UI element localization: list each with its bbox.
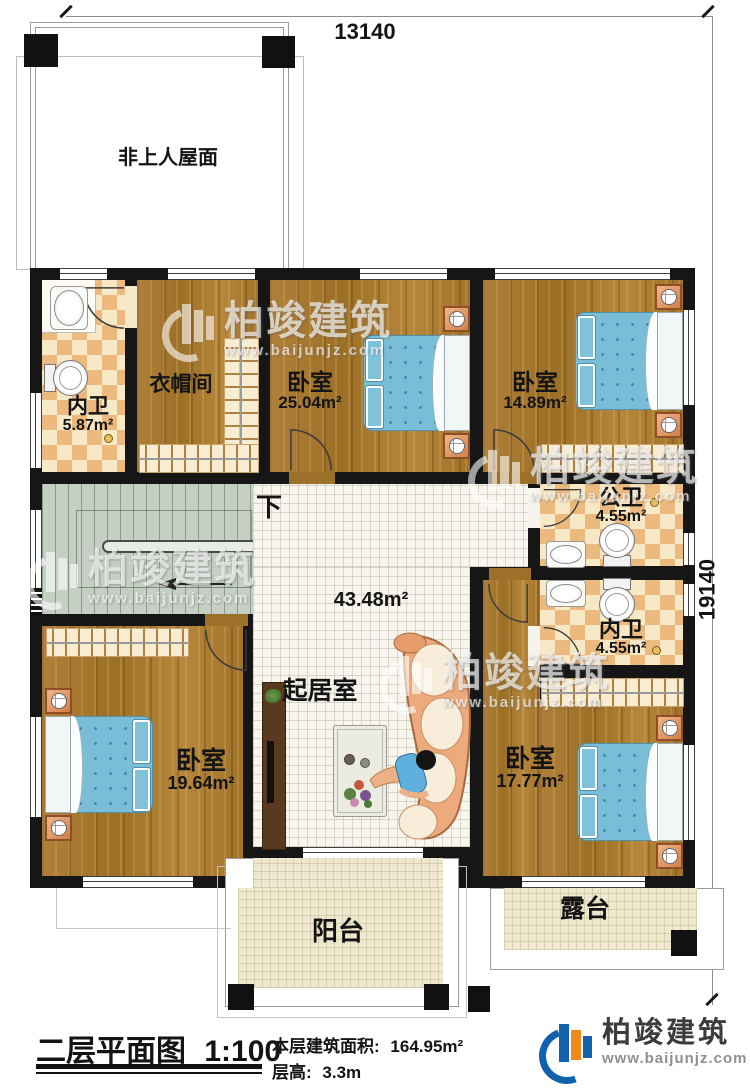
sliding-door-terrace [522, 876, 645, 888]
column [424, 984, 449, 1010]
door-gap [492, 472, 538, 484]
nightstand [656, 843, 683, 869]
room-area: 14.89m² [490, 394, 580, 412]
bedroom-right-wardrobe [541, 678, 684, 707]
roof-outline [30, 22, 289, 270]
room-label-bedroom-left: 卧室 19.64m² [156, 748, 246, 793]
door-arc-bedroom-top-right [492, 428, 536, 472]
dimension-height-label: 19140 [695, 545, 718, 635]
sink [546, 541, 586, 568]
room-label-balcony: 阳台 [308, 918, 368, 945]
room-name: 公卫 [588, 486, 654, 509]
room-label-living: 起居室 [276, 678, 364, 704]
window [683, 310, 695, 405]
floor-drain [104, 434, 113, 443]
room-bedroom-right-entry [483, 580, 540, 876]
door-gap [205, 614, 248, 626]
door-arc-bedroom-right [487, 582, 529, 624]
bed [577, 743, 683, 841]
door-gap [289, 472, 335, 484]
room-name: 内卫 [50, 396, 126, 418]
window [683, 584, 695, 616]
bed [45, 716, 153, 813]
nightstand [45, 688, 72, 714]
door-arc-public-bath [542, 488, 582, 528]
door-gap [528, 626, 540, 666]
room-area: 25.04m² [268, 394, 352, 412]
floor-area-value: 164.95m² [390, 1037, 463, 1056]
floor-area-line: 本层建筑面积: 164.95m² [272, 1032, 463, 1057]
window [683, 533, 695, 565]
title-underline-thick [36, 1064, 262, 1069]
nightstand [443, 306, 470, 332]
cup [360, 758, 370, 768]
titleblock: 二层平面图 1:100 本层建筑面积: 164.95m² 层高: 3.3m 柏竣… [0, 1018, 750, 1088]
column [262, 36, 295, 68]
brand-website: www.baijunjz.com [602, 1050, 747, 1067]
nightstand [656, 715, 683, 741]
dimension-width-label: 13140 [320, 20, 410, 43]
room-label-terrace: 露台 [554, 896, 616, 922]
floor-height-label: 层高: [272, 1063, 312, 1082]
window [83, 876, 193, 888]
ground-step-line [56, 888, 231, 929]
room-label-private-bath: 内卫 4.55m² [588, 618, 654, 658]
room-name: 卧室 [268, 370, 352, 394]
room-label-public-bath: 公卫 4.55m² [588, 486, 654, 526]
window [360, 268, 447, 280]
cup [344, 754, 355, 765]
window [168, 268, 255, 280]
window [60, 268, 107, 280]
door-arc-private-bath [542, 626, 582, 666]
nightstand [655, 284, 682, 310]
floor-plan-canvas: 13140 19140 非上人屋面 [0, 0, 750, 1088]
room-area: 4.55m² [588, 509, 654, 526]
title-underline-thin [36, 1072, 262, 1074]
column [671, 930, 697, 956]
room-name: 卧室 [490, 370, 580, 394]
window [30, 717, 42, 817]
column [24, 34, 58, 67]
dimension-line-top [66, 16, 712, 17]
room-label-living-area: 43.48m² [328, 590, 414, 611]
nightstand [45, 815, 72, 841]
brand-logo: 柏竣建筑 www.baijunjz.com [538, 1018, 747, 1076]
nightstand [655, 412, 682, 438]
hallway-floor [253, 484, 528, 567]
cloakroom-wardrobe-vertical [224, 338, 259, 446]
tv-cabinet [262, 682, 286, 850]
room-name: 卧室 [156, 748, 246, 774]
roof-label: 非上人屋面 [88, 148, 248, 169]
room-name: 内卫 [588, 618, 654, 641]
door-gap [125, 286, 137, 328]
stair-direction-arrow [158, 578, 176, 590]
toilet [599, 523, 635, 567]
stairs-down-label: 下 [252, 494, 286, 521]
room-area: 17.77m² [486, 772, 574, 791]
tv [267, 741, 274, 803]
sink [50, 286, 88, 330]
stair-direction-line [176, 583, 232, 585]
room-label-cloakroom: 衣帽间 [136, 374, 226, 396]
balcony-floor [253, 858, 443, 888]
bedroom-top-right-wardrobe [541, 444, 684, 473]
window [683, 745, 695, 840]
sliding-door-balcony [303, 847, 423, 858]
room-label-bedroom-top-mid: 卧室 25.04m² [268, 370, 352, 412]
room-label-bedroom-top-right: 卧室 14.89m² [490, 370, 580, 412]
bed [363, 335, 470, 431]
brand-name: 柏竣建筑 [602, 1018, 747, 1050]
brand-logo-icon [538, 1018, 596, 1076]
door-arc-bedroom-left [204, 628, 248, 672]
bed [575, 312, 683, 410]
door-arc-bath-top [82, 286, 126, 330]
room-area: 19.64m² [156, 774, 246, 793]
door-gap [489, 568, 531, 580]
door-arc-bedroom-top-mid [289, 428, 333, 472]
door-gap [528, 488, 540, 528]
floor-area-label: 本层建筑面积: [272, 1037, 380, 1056]
sofa-with-person [370, 630, 478, 848]
toilet [44, 360, 88, 396]
nightstand [443, 433, 470, 459]
dimension-line-right [712, 16, 713, 1005]
radiator [31, 588, 42, 616]
room-area: 5.87m² [50, 418, 126, 435]
sink [546, 580, 586, 607]
column [468, 986, 490, 1012]
floor-height-line: 层高: 3.3m [272, 1058, 361, 1083]
floor-height-value: 3.3m [322, 1063, 361, 1082]
toilet [599, 578, 635, 622]
room-name: 卧室 [486, 746, 574, 772]
room-area: 4.55m² [588, 641, 654, 658]
room-label-bath-top: 内卫 5.87m² [50, 396, 126, 435]
window [495, 268, 670, 280]
column [228, 984, 254, 1010]
bedroom-left-wardrobe [46, 628, 189, 657]
cloakroom-wardrobe-bottom [139, 444, 259, 473]
room-label-bedroom-right: 卧室 17.77m² [486, 746, 574, 791]
stair-handrail [102, 540, 253, 553]
window [30, 393, 42, 468]
